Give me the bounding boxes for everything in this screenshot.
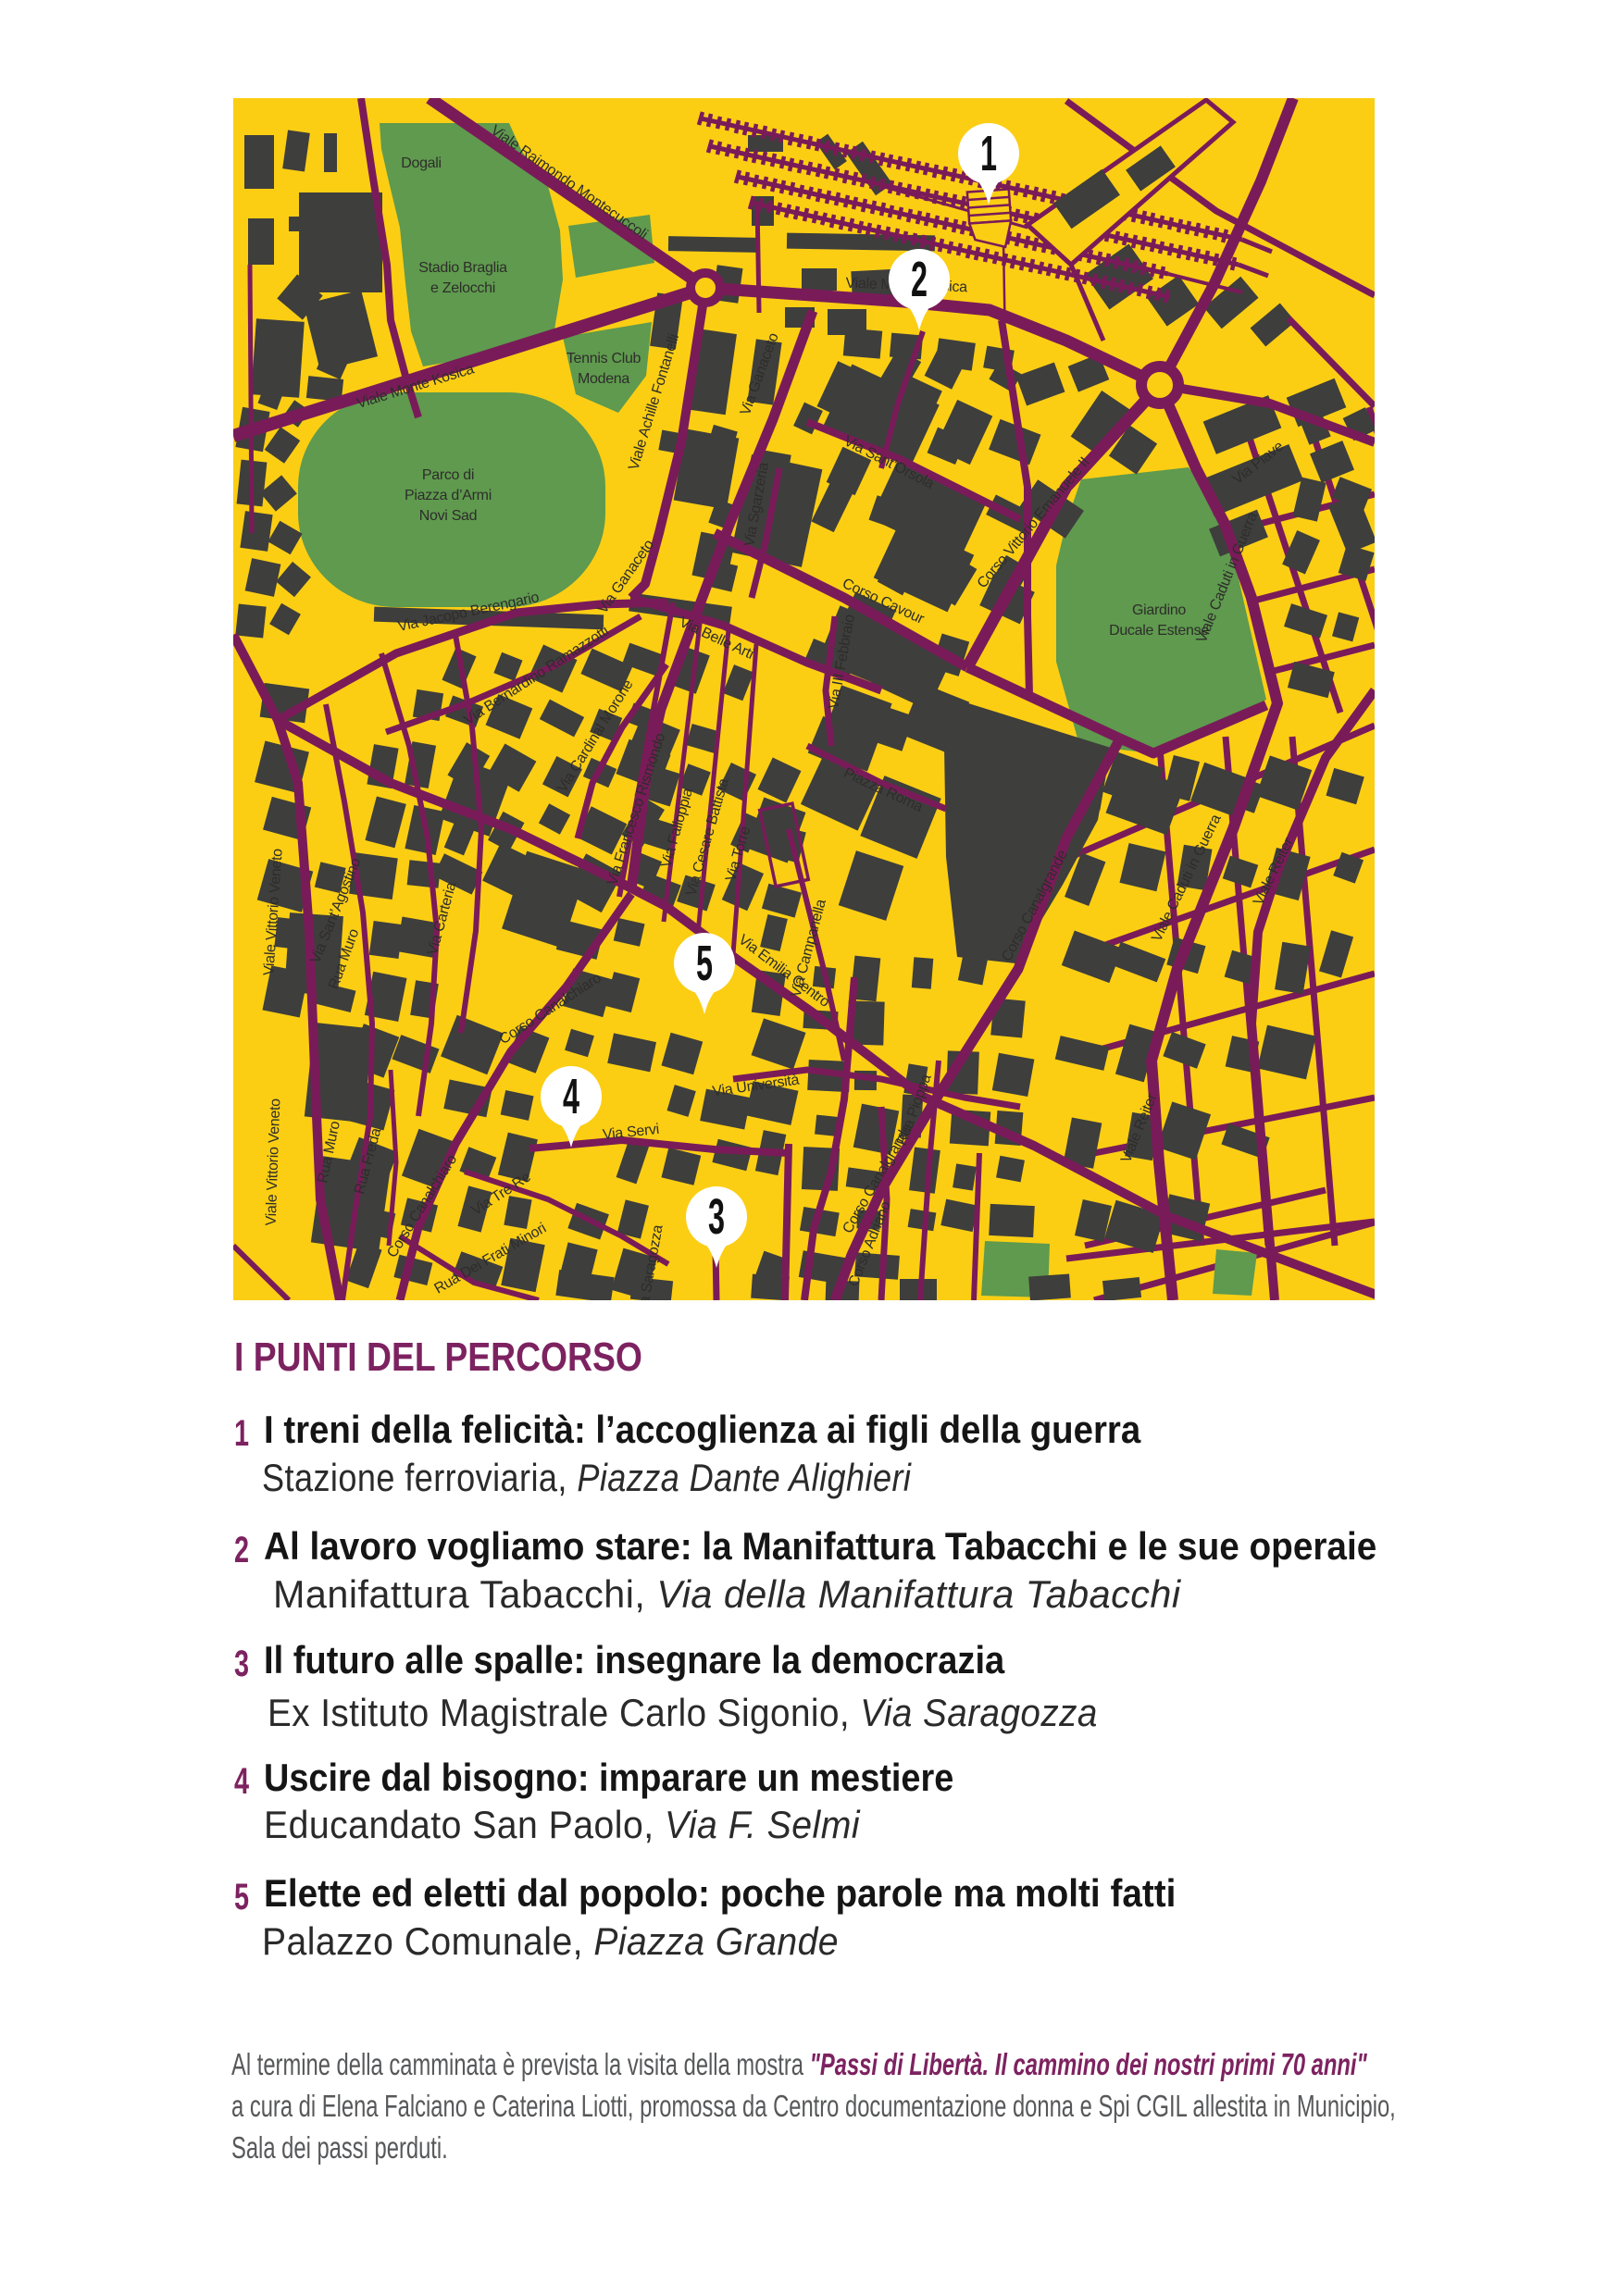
svg-text:3: 3	[708, 1190, 725, 1245]
svg-text:Novi Sad: Novi Sad	[419, 508, 478, 524]
svg-text:Dogali: Dogali	[401, 155, 442, 171]
svg-text:Tennis Club: Tennis Club	[567, 351, 641, 366]
svg-text:Modena: Modena	[578, 371, 629, 387]
svg-text:Ducale Estense: Ducale Estense	[1109, 623, 1209, 639]
svg-text:e Zelocchi: e Zelocchi	[430, 280, 495, 296]
svg-text:4: 4	[563, 1070, 579, 1124]
svg-text:Giardino: Giardino	[1132, 602, 1186, 618]
svg-text:5: 5	[696, 937, 713, 991]
svg-text:2: 2	[911, 253, 928, 307]
svg-text:Stadio Braglia: Stadio Braglia	[418, 260, 507, 276]
svg-text:Parco di: Parco di	[422, 467, 474, 483]
svg-text:1: 1	[980, 127, 997, 181]
svg-text:Piazza d’Armi: Piazza d’Armi	[405, 488, 492, 503]
